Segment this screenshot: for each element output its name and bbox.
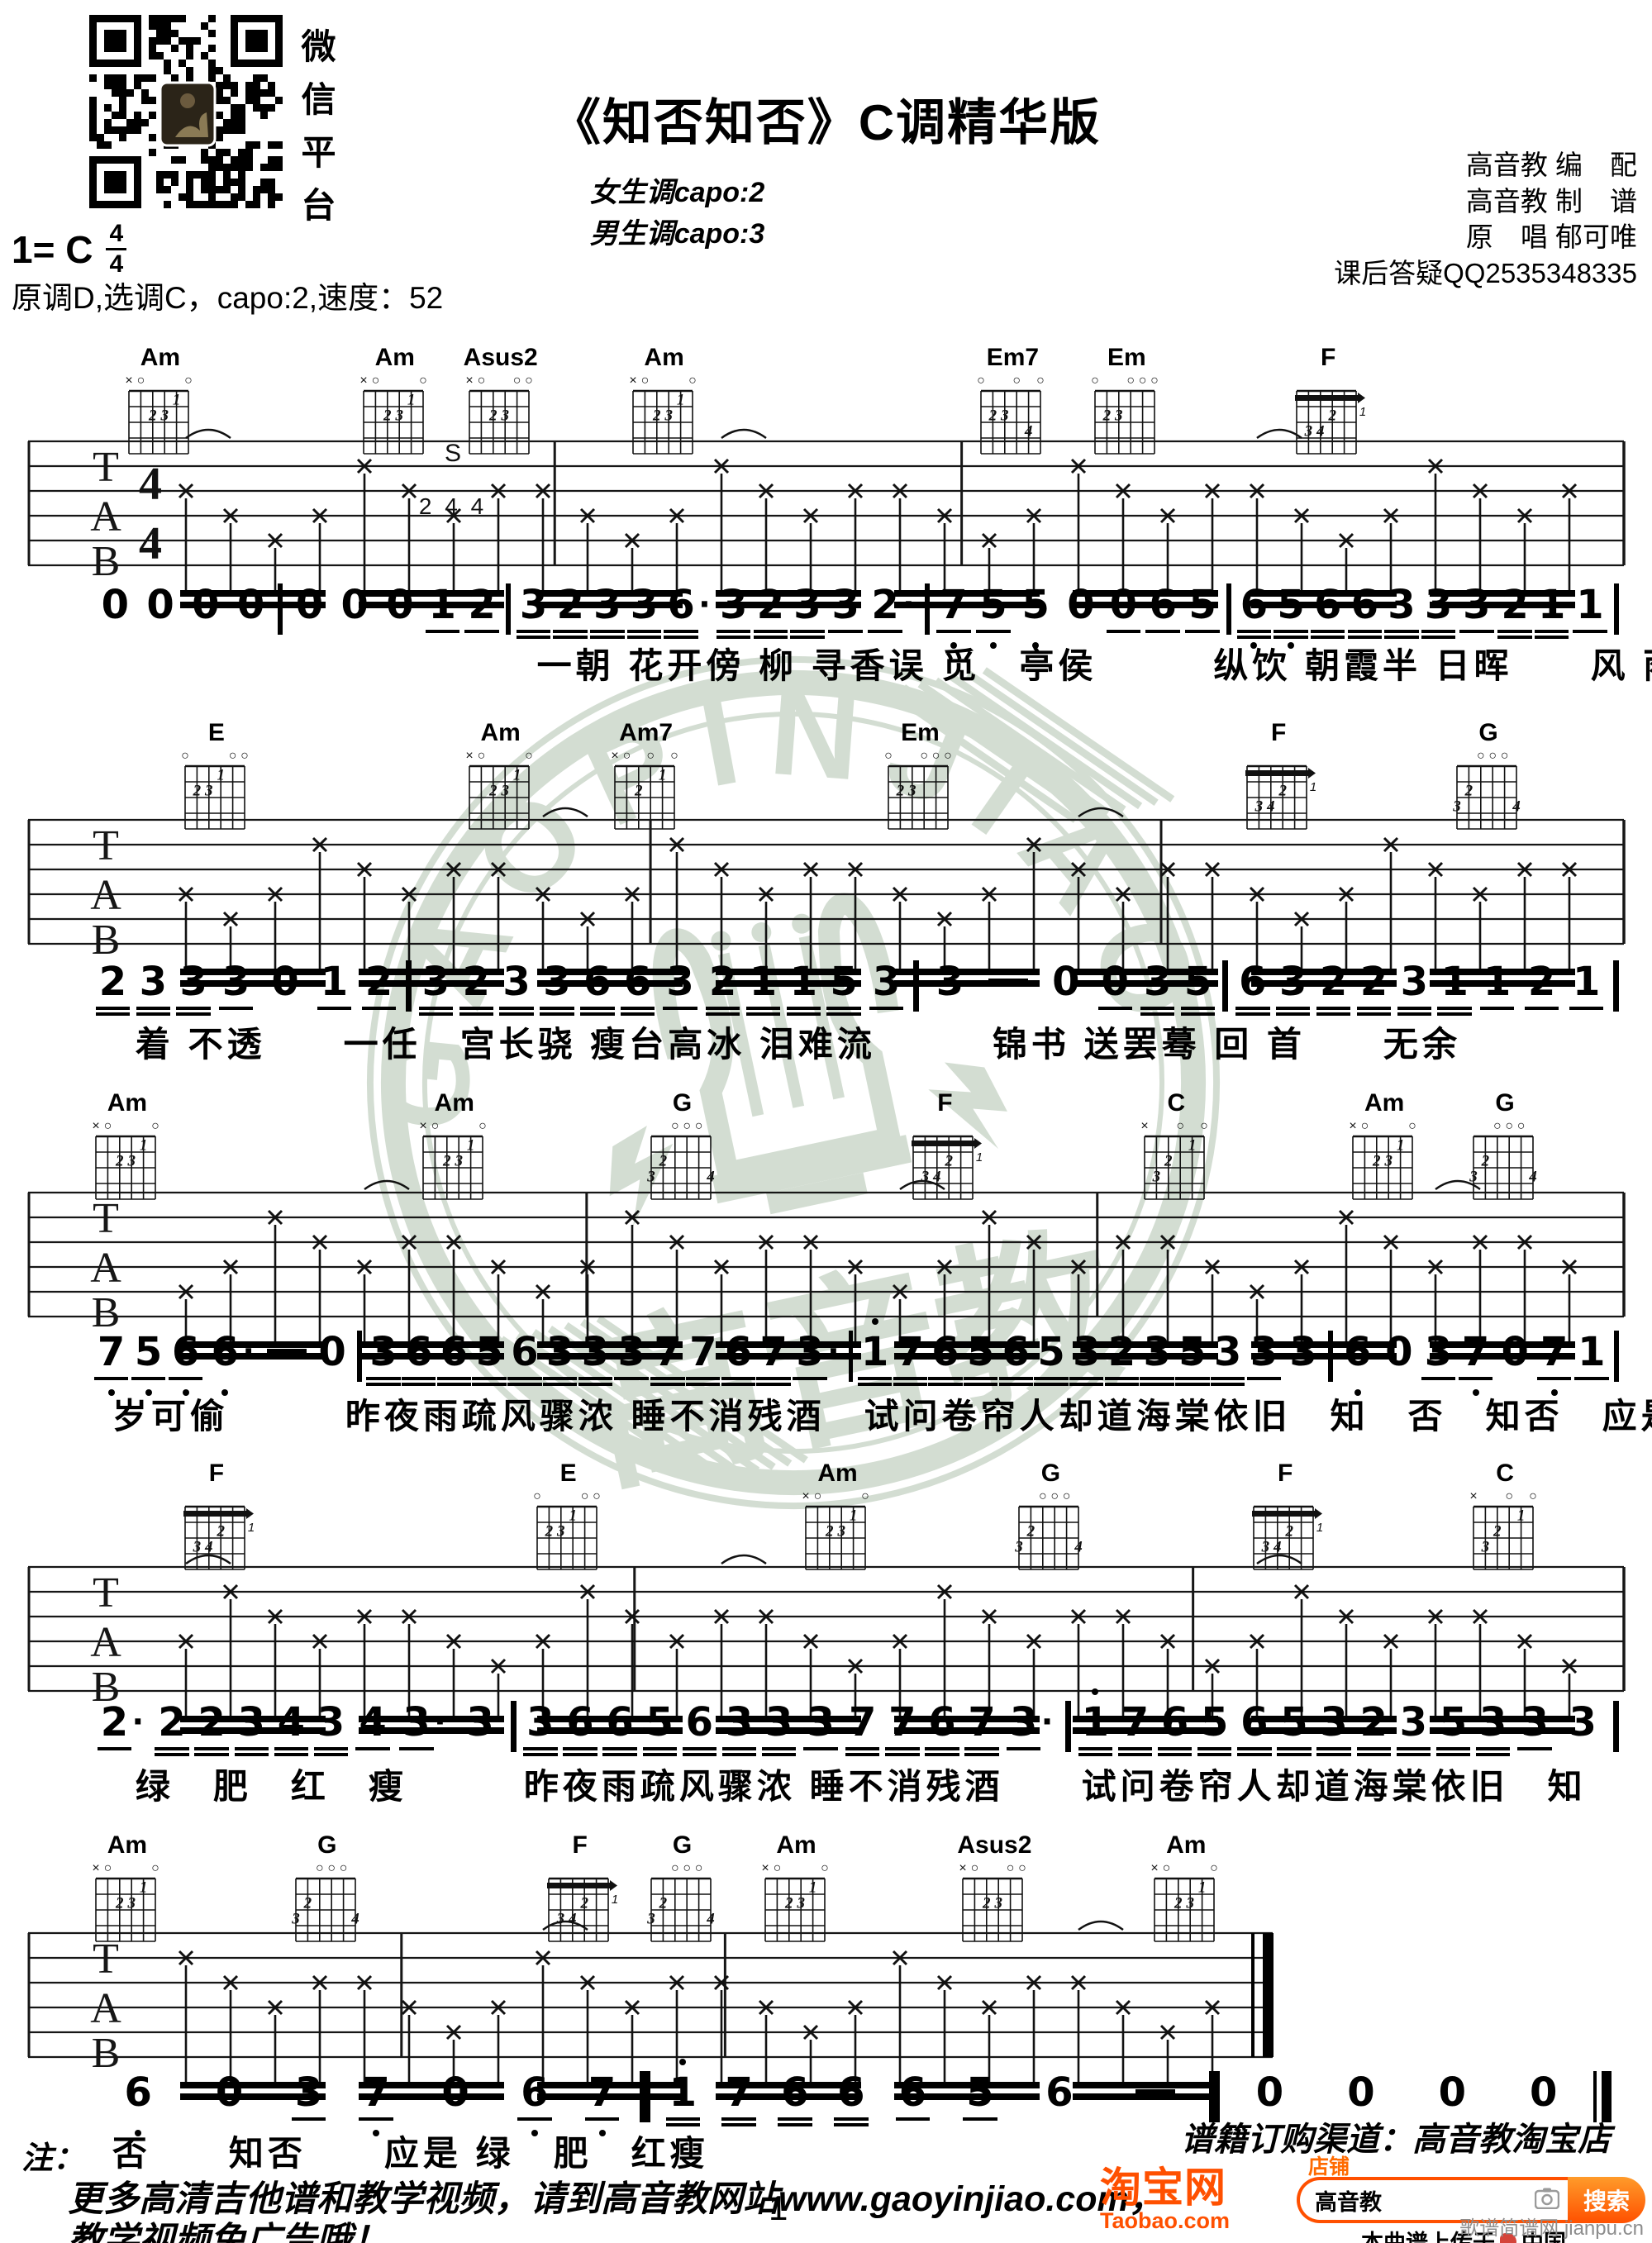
- svg-text:1: 1: [1198, 1879, 1207, 1897]
- svg-text:A: A: [90, 1985, 121, 2032]
- measure-barline: [406, 960, 412, 1012]
- svg-text:3: 3: [1384, 1153, 1393, 1170]
- melody-note: 3: [578, 1331, 613, 1374]
- melody-note: 6: [436, 1331, 472, 1374]
- svg-text:○: ○: [1177, 1119, 1185, 1133]
- measure-barline: [357, 1331, 362, 1382]
- melody-note: 3: [1273, 960, 1313, 1004]
- melody-note: 5: [1274, 1701, 1314, 1745]
- melody-note: 3: [521, 1701, 560, 1745]
- held-note-dash: [1105, 2071, 1205, 2096]
- svg-text:3: 3: [1481, 1539, 1490, 1556]
- svg-text:1: 1: [569, 1507, 577, 1525]
- chord-name: Am: [1146, 1833, 1226, 1858]
- svg-text:1: 1: [1517, 1507, 1526, 1525]
- melody-note: 2: [552, 583, 589, 627]
- melody-note: 6·: [663, 583, 716, 627]
- melody-note: 3: [1245, 1331, 1283, 1374]
- melody-note: 3: [715, 583, 752, 627]
- svg-text:○: ○: [683, 1861, 691, 1875]
- svg-text:○: ○: [1505, 1119, 1513, 1133]
- melody-note: 6: [617, 960, 658, 1004]
- svg-text:○: ○: [1063, 1489, 1071, 1503]
- melody-note: 0: [1378, 1331, 1420, 1374]
- svg-text:4: 4: [204, 1539, 212, 1556]
- melody-note: 6: [1235, 583, 1273, 627]
- melody-note: 6: [600, 1701, 640, 1745]
- melody-line: 00000001232336·32332·75500656566333211: [93, 583, 1623, 645]
- svg-text:1: 1: [676, 392, 684, 409]
- melody-note: 7: [962, 1701, 1002, 1745]
- svg-text:4: 4: [1273, 1539, 1282, 1556]
- chord-name: Am: [461, 721, 540, 745]
- svg-text:○: ○: [151, 1119, 159, 1133]
- svg-text:○: ○: [512, 374, 521, 388]
- svg-text:1: 1: [140, 1137, 148, 1155]
- melody-note: 6: [560, 1701, 600, 1745]
- svg-text:2: 2: [652, 407, 661, 425]
- melody-note: 3·: [792, 1331, 845, 1374]
- svg-text:○: ○: [1200, 1119, 1208, 1133]
- svg-text:×: ×: [959, 1861, 967, 1875]
- measure-barline: [925, 583, 930, 635]
- measure-barline: [1222, 960, 1228, 1012]
- lyrics-line: 一朝 花开傍 柳 寻香误 觅 亭侯 纵饮 朝霞半 日晖 风 雨: [537, 638, 1652, 688]
- melody-note: 1: [312, 960, 356, 1004]
- held-note-dash: [977, 960, 1039, 985]
- melody-note: 6: [721, 1331, 756, 1374]
- svg-text:○: ○: [240, 749, 249, 763]
- chord-name: Am: [797, 1461, 877, 1486]
- melody-note: 0: [1039, 960, 1093, 1004]
- svg-text:○: ○: [1408, 1119, 1416, 1133]
- melody-note: 3: [658, 960, 702, 1004]
- melody-note: 3: [1420, 1331, 1457, 1374]
- shop-label: 店铺: [1308, 2150, 1350, 2180]
- svg-text:3: 3: [837, 1523, 846, 1541]
- melody-note: 0: [138, 583, 183, 627]
- svg-text:○: ○: [340, 1861, 348, 1875]
- svg-text:○: ○: [103, 1119, 112, 1133]
- svg-text:T: T: [93, 444, 119, 491]
- melody-note: 5: [1034, 1331, 1069, 1374]
- melody-note: 0: [183, 2071, 274, 2115]
- melody-note: 6: [401, 1331, 436, 1374]
- svg-text:○: ○: [1163, 1861, 1171, 1875]
- melody-note: 0: [312, 1331, 353, 1374]
- held-note-dash: [261, 1331, 312, 1355]
- melody-note: 2: [1520, 960, 1564, 1004]
- chord-name: F: [905, 1091, 984, 1116]
- melody-note: 3: [454, 1701, 506, 1745]
- svg-text:○: ○: [862, 1489, 870, 1503]
- melody-note: 5: [1195, 1701, 1235, 1745]
- svg-text:A: A: [90, 1619, 121, 1666]
- melody-note: 2: [152, 1701, 192, 1745]
- melody-note: 0: [332, 583, 378, 627]
- svg-text:×: ×: [1349, 1119, 1356, 1133]
- melody-note: 6: [1232, 960, 1273, 1004]
- svg-text:2: 2: [193, 783, 202, 800]
- svg-text:2: 2: [488, 407, 498, 425]
- melody-note: 3: [1383, 583, 1421, 627]
- svg-text:○: ○: [1019, 1861, 1027, 1875]
- melody-note: 3: [311, 1701, 350, 1745]
- svg-text:3: 3: [1000, 407, 1009, 425]
- chord-name: Am: [355, 345, 435, 370]
- melody-note: 6: [1014, 2071, 1105, 2115]
- melody-note: 6: [928, 1331, 964, 1374]
- svg-text:○: ○: [945, 749, 953, 763]
- svg-text:T: T: [93, 822, 119, 869]
- svg-text:○: ○: [885, 749, 893, 763]
- svg-text:3: 3: [907, 783, 916, 800]
- svg-text:1: 1: [248, 1521, 255, 1535]
- svg-text:2: 2: [896, 783, 905, 800]
- melody-note: 6: [501, 2071, 569, 2115]
- chord-name: Am: [415, 1091, 494, 1116]
- svg-text:○: ○: [1517, 1119, 1526, 1133]
- melody-note: 3·: [395, 1701, 455, 1745]
- melody-note: 2·: [93, 1701, 152, 1745]
- melody-note: 1: [1533, 583, 1570, 627]
- chord-name: E: [177, 721, 256, 745]
- svg-text:○: ○: [1007, 1861, 1015, 1875]
- svg-text:×: ×: [1141, 1119, 1149, 1133]
- lyrics-line: 绿 肥 红 瘦 昨夜雨疏风骤浓 睡不消残酒 试问卷帘人却道海棠依旧 知: [136, 1759, 1587, 1809]
- svg-text:○: ○: [671, 1861, 679, 1875]
- credit-qq: 课后答疑QQ2535348335: [1334, 255, 1637, 292]
- melody-note: 7: [1535, 1331, 1573, 1374]
- svg-text:3: 3: [394, 407, 403, 425]
- svg-text:×: ×: [629, 374, 636, 388]
- measure-barline: [849, 1331, 854, 1382]
- svg-text:T: T: [93, 1195, 119, 1242]
- melody-note: 3: [799, 1701, 843, 1745]
- svg-text:○: ○: [640, 374, 649, 388]
- chord-name: Asus2: [461, 345, 540, 370]
- svg-text:1: 1: [1397, 1137, 1405, 1155]
- svg-text:1: 1: [173, 392, 181, 409]
- svg-text:3: 3: [204, 783, 212, 800]
- chord-name: G: [643, 1091, 722, 1116]
- measure-barline: [913, 960, 919, 1012]
- svg-text:○: ○: [921, 749, 929, 763]
- melody-note: 3: [1394, 960, 1435, 1004]
- svg-text:2: 2: [1372, 1153, 1381, 1170]
- melody-note: 6: [1235, 1701, 1274, 1745]
- svg-text:3: 3: [1261, 1539, 1270, 1556]
- svg-text:2: 2: [1481, 1153, 1490, 1170]
- melody-note: 4: [271, 1701, 311, 1745]
- melody-note: 3: [1393, 1701, 1433, 1745]
- chord-name: F: [177, 1461, 256, 1486]
- svg-text:○: ○: [533, 1489, 541, 1503]
- melody-note: 3: [613, 1331, 650, 1374]
- melody-note: 5: [963, 1331, 998, 1374]
- camera-icon[interactable]: [1535, 2188, 1559, 2213]
- chord-name: Am: [1345, 1091, 1424, 1116]
- melody-note: 5: [640, 1701, 679, 1745]
- measure-barline: [1328, 1331, 1333, 1382]
- chord-name: Am: [625, 345, 704, 370]
- svg-text:4: 4: [139, 459, 162, 510]
- melody-note: 6: [93, 2071, 183, 2115]
- svg-text:3: 3: [1015, 1539, 1024, 1556]
- svg-text:○: ○: [580, 1489, 588, 1503]
- melody-note: 3: [1069, 1331, 1104, 1374]
- svg-text:3: 3: [664, 407, 673, 425]
- svg-text:T: T: [93, 1936, 119, 1983]
- svg-text:×: ×: [1469, 1489, 1477, 1503]
- svg-text:3: 3: [1152, 1169, 1161, 1186]
- melody-note: 3: [1140, 1331, 1175, 1374]
- svg-text:○: ○: [671, 1119, 679, 1133]
- svg-text:B: B: [92, 2030, 121, 2077]
- melody-note: 2: [93, 960, 133, 1004]
- melody-note: 5: [1433, 1701, 1473, 1745]
- melody-note: 0: [1224, 2071, 1315, 2115]
- svg-text:2: 2: [383, 407, 392, 425]
- melody-note: 3: [923, 960, 977, 1004]
- svg-text:×: ×: [761, 1861, 769, 1875]
- melody-note: 1: [743, 960, 783, 1004]
- svg-text:○: ○: [688, 374, 697, 388]
- svg-text:3: 3: [126, 1153, 136, 1170]
- svg-text:○: ○: [1039, 1489, 1047, 1503]
- melody-note: 3: [366, 1331, 402, 1374]
- capo-female: 女生调capo:2: [0, 169, 1354, 210]
- svg-text:○: ○: [1488, 749, 1497, 763]
- svg-text:2: 2: [1026, 1523, 1035, 1541]
- melody-note: 2: [702, 960, 743, 1004]
- melody-note: 2: [192, 1701, 231, 1745]
- svg-text:1: 1: [513, 767, 521, 784]
- svg-text:2: 2: [784, 1895, 793, 1912]
- melody-note: 3: [826, 583, 865, 627]
- svg-text:3: 3: [646, 1169, 655, 1186]
- melody-note: 2·: [865, 583, 921, 627]
- svg-text:○: ○: [821, 1861, 829, 1875]
- svg-text:1: 1: [1316, 1521, 1323, 1535]
- melody-note: 3: [759, 1701, 799, 1745]
- svg-text:2: 2: [1174, 1895, 1183, 1912]
- melody-note: 3: [864, 960, 909, 1004]
- chord-name: Em: [880, 721, 959, 745]
- lyrics-line: 着 不透 一任 宫长骁 瘦台高冰 泪难流 锦书 送罢蓦 回 首 无余: [136, 1017, 1461, 1067]
- melody-note: 6: [1309, 583, 1346, 627]
- melody-note: 3: [174, 960, 214, 1004]
- chord-name: G: [288, 1833, 367, 1858]
- melody-note: 0: [1093, 960, 1137, 1004]
- taobao-logo: 淘宝网 Taobao.com: [1100, 2167, 1230, 2232]
- svg-text:1: 1: [976, 1150, 983, 1164]
- measure-barline: [506, 583, 511, 635]
- svg-text:×: ×: [125, 374, 132, 388]
- svg-text:○: ○: [1361, 1119, 1369, 1133]
- melody-note: 7: [650, 1331, 686, 1374]
- credit-singer: 原 唱 郁可唯: [1334, 219, 1637, 255]
- melody-note: 1: [1573, 1331, 1610, 1374]
- svg-text:○: ○: [184, 374, 193, 388]
- melody-note: 7: [934, 583, 974, 627]
- melody-note: 2: [1497, 583, 1534, 627]
- lyrics-line: 岁可偷 昨夜雨疏风骤浓 睡不消残酒 试问卷帘人却道海棠依旧 知 否 知否 应是: [112, 1388, 1652, 1439]
- measure-barline: [1226, 583, 1231, 635]
- melody-note: 0: [287, 583, 332, 627]
- svg-text:○: ○: [1529, 1489, 1537, 1503]
- svg-text:1: 1: [217, 767, 225, 784]
- svg-text:2: 2: [1102, 407, 1112, 425]
- melody-note: 0: [378, 583, 423, 627]
- chord-name: Am7: [607, 721, 686, 745]
- chord-name: G: [1465, 1091, 1545, 1116]
- melody-note: 6: [507, 1331, 543, 1374]
- melody-note: 5: [1175, 1331, 1211, 1374]
- svg-text:○: ○: [419, 374, 427, 388]
- svg-text:○: ○: [229, 749, 237, 763]
- svg-text:3: 3: [994, 1895, 1003, 1912]
- svg-text:3: 3: [500, 783, 509, 800]
- svg-text:2: 2: [115, 1895, 124, 1912]
- melody-note: 3: [1137, 960, 1178, 1004]
- melody-note: 0: [93, 583, 138, 627]
- svg-text:○: ○: [773, 1861, 781, 1875]
- svg-text:○: ○: [1127, 374, 1135, 388]
- melody-note: 7: [569, 2071, 636, 2115]
- svg-text:○: ○: [1150, 374, 1159, 388]
- melody-note: 0: [410, 2071, 501, 2115]
- svg-text:2: 2: [1328, 407, 1337, 425]
- melody-note: 3: [1210, 1331, 1245, 1374]
- chord-name: E: [529, 1461, 608, 1486]
- svg-text:○: ○: [316, 1861, 324, 1875]
- melody-line: 233301232336632115330035632231121: [93, 960, 1623, 1021]
- svg-text:○: ○: [327, 1861, 336, 1875]
- measure-barline: [511, 1701, 517, 1752]
- svg-text:2: 2: [1285, 1523, 1294, 1541]
- melody-note: 3·: [1002, 1701, 1061, 1745]
- melody-note: 1: [655, 2071, 711, 2115]
- svg-text:T: T: [93, 1569, 119, 1617]
- svg-text:○: ○: [694, 1119, 702, 1133]
- melody-note: 1: [1570, 583, 1610, 627]
- svg-text:1: 1: [1359, 405, 1366, 419]
- melody-note: 5: [824, 960, 864, 1004]
- tuning-info: 原调D,选调C，capo:2,速度：52: [12, 273, 443, 317]
- svg-text:2: 2: [634, 783, 643, 800]
- melody-note: 0: [1059, 583, 1104, 627]
- svg-text:2: 2: [488, 783, 498, 800]
- melody-note: 0: [1494, 1331, 1535, 1374]
- chord-name: F: [540, 1833, 620, 1858]
- svg-text:○: ○: [1477, 749, 1485, 763]
- svg-text:○: ○: [932, 749, 940, 763]
- svg-text:○: ○: [1139, 374, 1147, 388]
- svg-text:1: 1: [658, 767, 666, 784]
- melody-note: 5: [130, 1331, 167, 1374]
- melody-note: 3: [1283, 1331, 1324, 1374]
- svg-text:A: A: [90, 1245, 121, 1292]
- svg-text:2: 2: [945, 1153, 954, 1170]
- svg-text:3: 3: [159, 407, 169, 425]
- svg-text:2: 2: [658, 1153, 667, 1170]
- svg-text:×: ×: [465, 374, 473, 388]
- svg-text:3: 3: [500, 407, 509, 425]
- chord-name: C: [1465, 1461, 1545, 1486]
- svg-text:○: ○: [971, 1861, 979, 1875]
- melody-note: 0: [1498, 2071, 1589, 2115]
- svg-text:○: ○: [1091, 374, 1099, 388]
- footer-note-line2: 教学视频免广告哦！: [68, 2212, 388, 2243]
- melody-note: 3: [789, 583, 826, 627]
- svg-text:○: ○: [103, 1861, 112, 1875]
- melody-note: 0: [1407, 2071, 1497, 2115]
- capo-male: 男生调capo:3: [0, 211, 1354, 251]
- svg-text:○: ○: [593, 1489, 601, 1503]
- svg-text:4: 4: [1528, 1169, 1537, 1186]
- svg-text:○: ○: [371, 374, 379, 388]
- svg-text:4: 4: [706, 1169, 715, 1186]
- svg-text:1: 1: [1188, 1137, 1197, 1155]
- melody-note: 3: [231, 1701, 271, 1745]
- chord-name: F: [1239, 721, 1318, 745]
- melody-note: 3: [515, 583, 552, 627]
- melody-note: 2: [1354, 960, 1394, 1004]
- svg-text:○: ○: [1013, 374, 1021, 388]
- melody-line: 2·2234343·33665633377673·1765653235333: [93, 1701, 1623, 1762]
- svg-text:○: ○: [814, 1489, 822, 1503]
- svg-text:○: ○: [1210, 1861, 1218, 1875]
- svg-text:○: ○: [646, 749, 655, 763]
- melody-note: 7: [685, 1331, 721, 1374]
- melody-note: 2: [462, 583, 502, 627]
- page-title: 《知否知否》C调精华版: [0, 83, 1652, 155]
- measure-barline: [1614, 583, 1619, 635]
- melody-note: 7: [342, 2071, 410, 2115]
- svg-text:2: 2: [302, 1895, 312, 1912]
- melody-note: 6·: [204, 1331, 261, 1374]
- measure-barline: [278, 583, 283, 635]
- svg-text:2: 2: [579, 1895, 588, 1912]
- melody-note: 3: [537, 960, 578, 1004]
- svg-text:×: ×: [465, 749, 473, 763]
- svg-text:A: A: [90, 493, 121, 541]
- melody-note: 2: [752, 583, 789, 627]
- melody-note: 6: [577, 960, 617, 1004]
- melody-note: 2: [456, 960, 497, 1004]
- melody-note: 3: [588, 583, 626, 627]
- melody-note: 6: [1155, 1701, 1195, 1745]
- chord-name: F: [1245, 1461, 1325, 1486]
- svg-text:3: 3: [126, 1895, 136, 1912]
- svg-text:A: A: [90, 872, 121, 919]
- chord-name: Am: [88, 1833, 167, 1858]
- melody-note: 6: [679, 1701, 719, 1745]
- svg-text:2: 2: [115, 1153, 124, 1170]
- svg-text:4: 4: [1074, 1539, 1083, 1556]
- chord-name: Em: [1087, 345, 1166, 370]
- svg-text:2: 2: [982, 1895, 991, 1912]
- svg-text:B: B: [92, 917, 121, 964]
- melody-note: 1: [1075, 1701, 1115, 1745]
- svg-text:2: 2: [442, 1153, 451, 1170]
- chord-name: Am: [757, 1833, 836, 1858]
- svg-text:○: ○: [151, 1861, 159, 1875]
- svg-text:1: 1: [140, 1879, 148, 1897]
- svg-text:3: 3: [796, 1895, 805, 1912]
- melody-note: 3: [214, 960, 259, 1004]
